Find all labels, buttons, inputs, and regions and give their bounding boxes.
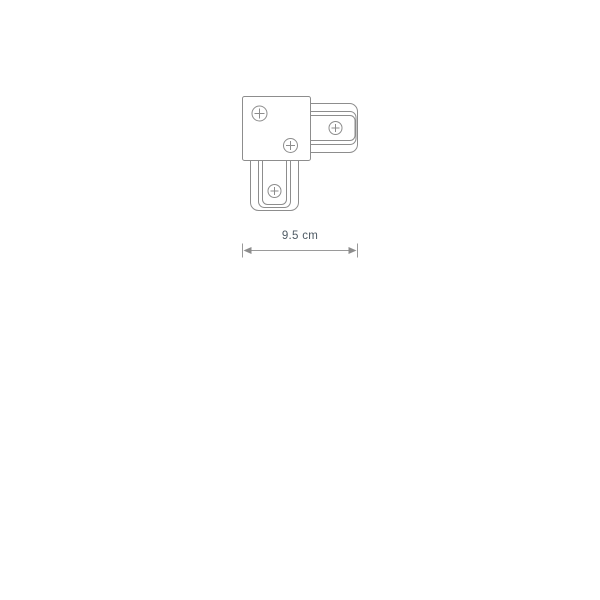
screw-icon [252,106,267,121]
screw-icon [268,185,281,198]
connector-body [243,97,311,161]
screw-icon [329,122,342,135]
right-track-arm [311,104,358,153]
screw-icon [284,139,298,153]
technical-drawing-page: 9.5 cm [0,0,600,600]
bottom-track-arm [251,161,299,211]
technical-drawing-canvas: 9.5 cm [0,0,600,600]
dimension-label: 9.5 cm [282,230,318,242]
dimension-annotation: 9.5 cm [243,230,358,258]
arrow-right-icon [349,247,357,254]
l-connector-drawing [243,97,358,211]
arrow-left-icon [244,247,252,254]
